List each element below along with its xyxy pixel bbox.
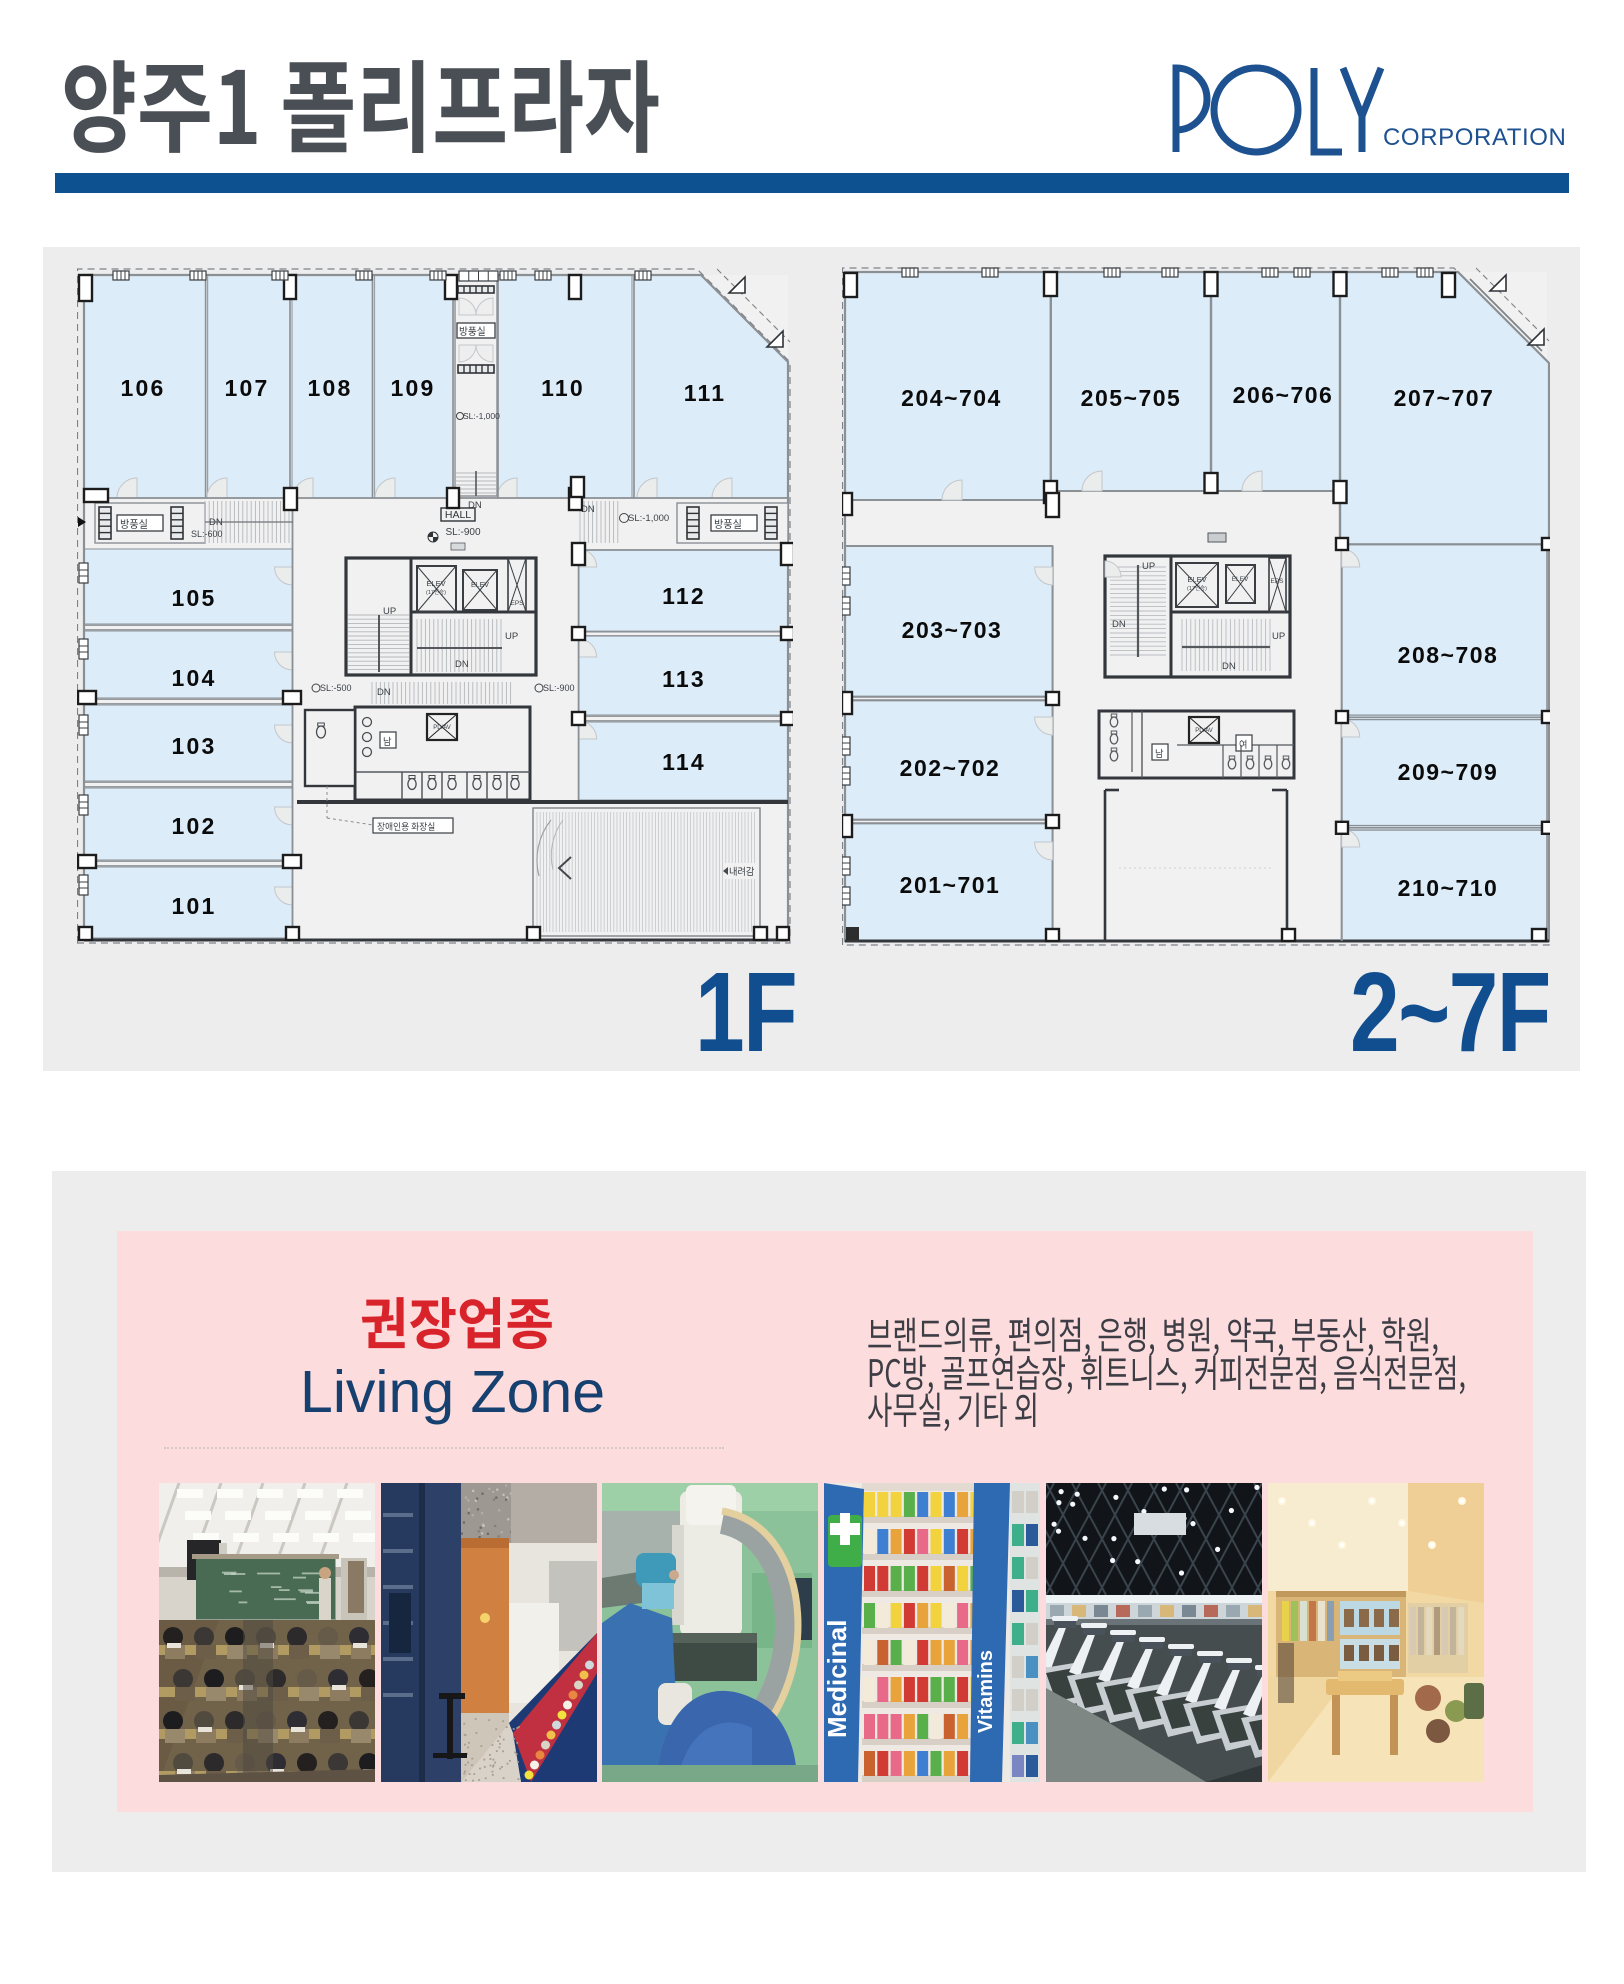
- svg-text:SL:-900: SL:-900: [543, 683, 575, 693]
- svg-text:CORPORATION: CORPORATION: [1383, 124, 1567, 151]
- svg-text:UP: UP: [1272, 631, 1285, 642]
- svg-text:(17인승): (17인승): [426, 589, 446, 596]
- svg-text:104: 104: [172, 665, 217, 691]
- svg-text:DN: DN: [1112, 619, 1126, 630]
- svg-text:101: 101: [172, 893, 217, 919]
- svg-text:203~703: 203~703: [902, 617, 1003, 643]
- svg-text:106: 106: [121, 375, 166, 401]
- svg-text:DN: DN: [209, 517, 223, 528]
- svg-text:107: 107: [225, 375, 270, 401]
- svg-text:EPS: EPS: [510, 600, 524, 607]
- svg-text:205~705: 205~705: [1081, 385, 1182, 411]
- svg-text:ELEV: ELEV: [471, 582, 489, 589]
- svg-text:PD/AV: PD/AV: [433, 725, 451, 731]
- svg-text:108: 108: [308, 375, 353, 401]
- svg-text:EPS: EPS: [1270, 578, 1284, 585]
- svg-text:SL:-1,000: SL:-1,000: [628, 513, 669, 524]
- svg-text:SL:-500: SL:-500: [320, 683, 352, 693]
- svg-text:SL:-900: SL:-900: [445, 527, 480, 538]
- svg-text:110: 110: [541, 375, 585, 401]
- svg-text:ELEV: ELEV: [1187, 575, 1206, 584]
- svg-text:SL:-1,000: SL:-1,000: [463, 411, 500, 421]
- svg-text:112: 112: [662, 583, 706, 609]
- svg-text:HALL: HALL: [445, 509, 471, 521]
- svg-text:PD/AV: PD/AV: [1195, 728, 1213, 734]
- svg-text:ELEV: ELEV: [426, 579, 445, 588]
- svg-text:DN: DN: [455, 659, 469, 670]
- svg-text:UP: UP: [383, 606, 396, 617]
- svg-text:SL:-600: SL:-600: [191, 529, 223, 539]
- svg-text:UP: UP: [505, 631, 518, 642]
- svg-text:ELEV: ELEV: [1232, 576, 1249, 583]
- svg-text:105: 105: [172, 585, 217, 611]
- svg-text:208~708: 208~708: [1398, 642, 1499, 668]
- svg-text:204~704: 204~704: [901, 385, 1002, 411]
- svg-text:(17인승): (17인승): [1187, 585, 1207, 592]
- svg-text:DN: DN: [1222, 661, 1236, 672]
- svg-text:113: 113: [662, 666, 706, 692]
- svg-text:206~706: 206~706: [1233, 382, 1334, 408]
- svg-text:Vitamins: Vitamins: [975, 1650, 997, 1733]
- svg-text:207~707: 207~707: [1394, 385, 1495, 411]
- svg-text:UP: UP: [1142, 561, 1155, 572]
- svg-text:202~702: 202~702: [900, 755, 1001, 781]
- svg-text:111: 111: [684, 380, 726, 406]
- svg-text:103: 103: [172, 733, 217, 759]
- svg-text:114: 114: [662, 749, 706, 775]
- svg-text:210~710: 210~710: [1398, 875, 1499, 901]
- svg-text:102: 102: [172, 813, 217, 839]
- svg-text:209~709: 209~709: [1398, 759, 1499, 785]
- svg-text:201~701: 201~701: [900, 872, 1001, 898]
- svg-text:DN: DN: [377, 687, 391, 698]
- svg-text:Medicinal: Medicinal: [824, 1620, 852, 1738]
- svg-text:109: 109: [391, 375, 436, 401]
